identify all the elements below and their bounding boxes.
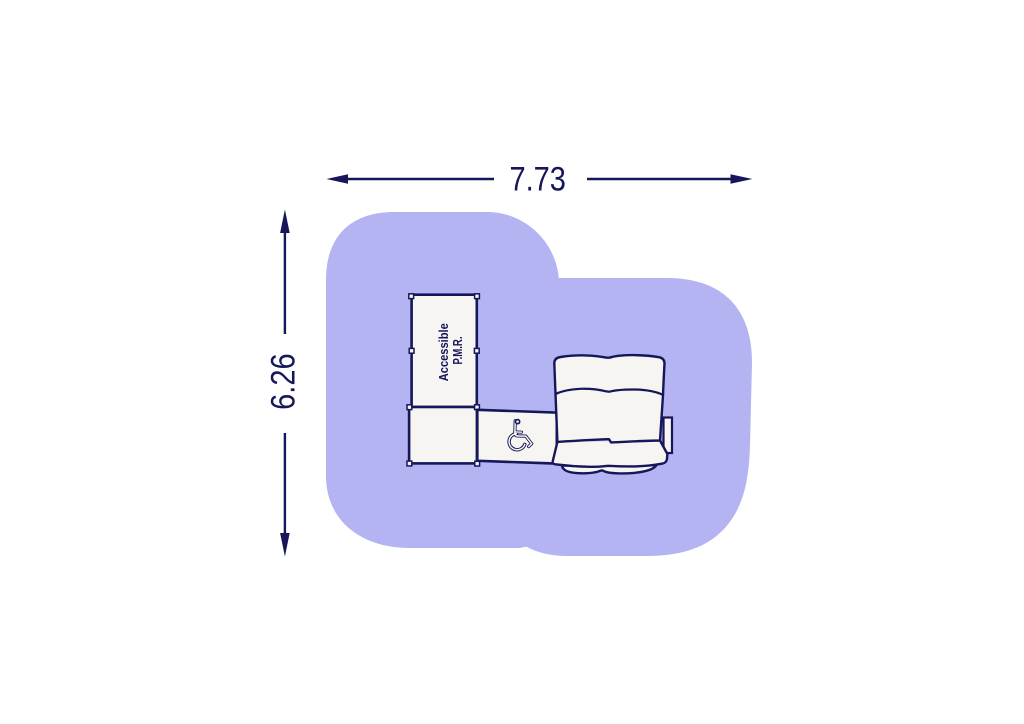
svg-text:6.26: 6.26 [265, 353, 303, 410]
svg-text:7.73: 7.73 [509, 161, 566, 199]
